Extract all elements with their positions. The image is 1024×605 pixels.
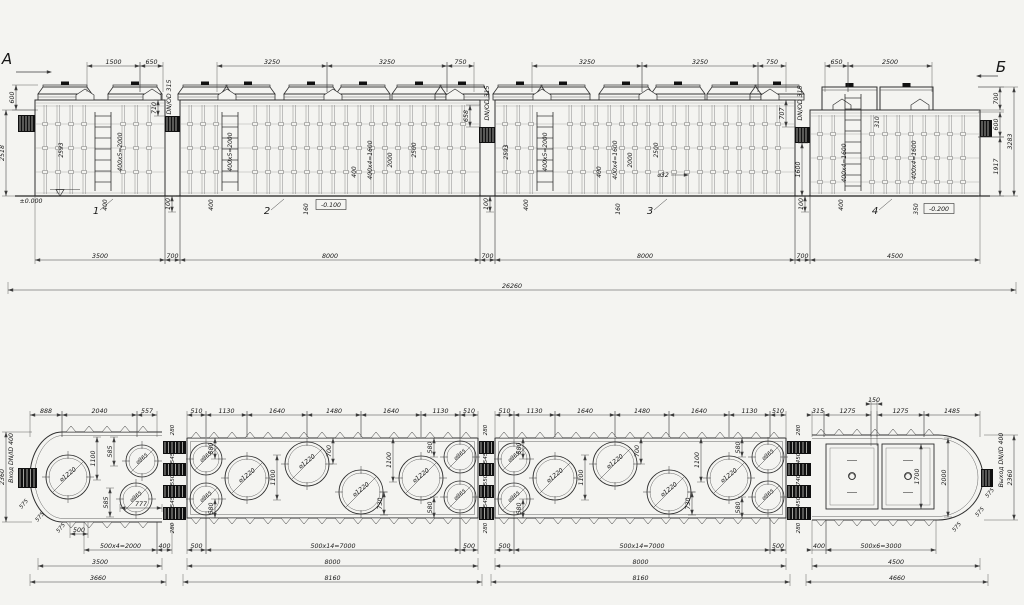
rib-mark (66, 426, 76, 432)
pointed-cover (911, 99, 929, 110)
rib-plate (776, 122, 781, 125)
rib-mark (870, 520, 880, 526)
note-label: 310 (874, 116, 881, 128)
dim-arrow (532, 64, 537, 67)
rib-plate (935, 156, 940, 159)
dim-arrow (983, 580, 988, 583)
rib-plate (581, 170, 586, 173)
note-label: 2593 (58, 142, 65, 157)
rib-plate (776, 170, 781, 173)
dimension-label: 580 (427, 441, 434, 453)
dim-arrow (35, 258, 40, 261)
rib-plate (357, 122, 362, 125)
dim-arrow (391, 477, 394, 482)
diameter-label: ⌀1220 (605, 453, 625, 471)
manhole-dome-rim (226, 85, 270, 87)
dim-arrow (583, 455, 586, 460)
dim-arrow (84, 548, 89, 551)
rib-plate (82, 146, 87, 149)
rib-plate (620, 146, 625, 149)
dim-arrow (469, 64, 474, 67)
dim-arrow (919, 504, 922, 509)
rib-mark (697, 432, 707, 438)
diameter-label: ⌀965 (761, 488, 776, 502)
gap-dim-label: 280 (796, 522, 802, 533)
rib-plate (896, 156, 901, 159)
rib-plate (344, 122, 349, 125)
rib-plate (909, 132, 914, 135)
dim-arrow (302, 413, 307, 416)
dimension-label: 700 (326, 445, 333, 457)
rib-mark (371, 518, 381, 524)
note-label: 2000 (627, 152, 634, 167)
rib-plate (82, 170, 87, 173)
rib-plate (961, 156, 966, 159)
manhole-dome-rim (440, 85, 484, 87)
dim-arrow (477, 580, 482, 583)
dim-arrow (217, 64, 222, 67)
rib-plate (383, 170, 388, 173)
dimension-label: 26260 (502, 283, 522, 290)
rib-mark (852, 429, 862, 435)
dimension-label: 1100 (90, 450, 97, 466)
gap-dim-label: 280 (483, 424, 489, 435)
dimension-label: 510 (498, 408, 510, 415)
rib-mark (679, 518, 689, 524)
dimension-label: 585 (103, 496, 110, 508)
rib-plate (724, 122, 729, 125)
rib-plate (737, 146, 742, 149)
section-number-4: 4 (872, 206, 878, 217)
rib-plate (818, 132, 823, 135)
rib-plate (831, 180, 836, 183)
gap-dim-label: 550 (483, 474, 489, 485)
rib-plate (568, 122, 573, 125)
dimension-label: 580 (427, 501, 434, 513)
rib-plate (56, 122, 61, 125)
rib-plate (435, 122, 440, 125)
dimension-label: 700 (166, 253, 178, 260)
rib-mark (661, 432, 671, 438)
dimension-label: 2360 (0, 469, 6, 485)
dim-arrow (583, 495, 586, 500)
rib-plate (292, 146, 297, 149)
dim-arrow (931, 548, 936, 551)
dim-arrow (946, 512, 949, 517)
rib-plate (503, 170, 508, 173)
manhole-dome-rim (541, 85, 585, 87)
rib-plate (188, 146, 193, 149)
dim-arrow (521, 438, 524, 443)
dim-arrow (800, 143, 803, 148)
dim-arrow (785, 580, 790, 583)
dim-arrow (699, 477, 702, 482)
dim-arrow (514, 413, 519, 416)
rib-plate (948, 180, 953, 183)
dimension-label: 2000 (941, 469, 948, 485)
pointed-cover (143, 89, 161, 100)
rib-mark (281, 432, 291, 438)
rib-plate (750, 122, 755, 125)
dim-arrow (975, 564, 980, 567)
dimension-label: 580 (516, 502, 523, 514)
rib-plate (305, 170, 310, 173)
dim-arrow (206, 413, 211, 416)
rib-mark (589, 518, 599, 524)
vent-knob (903, 83, 911, 87)
rib-mark (816, 429, 826, 435)
module-box-inner (886, 448, 930, 505)
dim-arrow (877, 413, 882, 416)
dimension-label: 8160 (324, 575, 340, 582)
dim-arrow (781, 64, 786, 67)
dimension-label: 400 (813, 543, 825, 550)
dim-arrow (642, 64, 647, 67)
rib-plate (620, 170, 625, 173)
dim-arrow (108, 488, 111, 493)
rib-mark (120, 522, 130, 528)
dimension-label: 600 (9, 91, 16, 103)
rib-plate (870, 180, 875, 183)
note-label: 400 (351, 166, 358, 178)
rib-plate (672, 122, 677, 125)
rib-mark (733, 432, 743, 438)
dim-arrow (152, 548, 157, 551)
rib-plate (883, 156, 888, 159)
note-label: 2500 (653, 142, 660, 157)
rib-plate (737, 122, 742, 125)
dim-arrow (112, 437, 115, 442)
rib-mark (769, 432, 779, 438)
rib-plate (961, 132, 966, 135)
note-label: 350 (913, 203, 920, 215)
rib-mark (227, 518, 237, 524)
rib-plate (568, 170, 573, 173)
rib-plate (134, 146, 139, 149)
dimension-label: 658 (463, 110, 470, 122)
section-number-1: 1 (93, 206, 99, 217)
diameter-label: ⌀1220 (719, 467, 739, 485)
pipe-size-label: DN/OD 315 (797, 85, 804, 120)
connection-pipe (787, 463, 811, 476)
rib-mark (461, 518, 471, 524)
dimension-label: 650 (830, 59, 842, 66)
rib-plate (883, 180, 888, 183)
rib-mark (227, 432, 237, 438)
dimension-label: 750 (766, 59, 778, 66)
dimension-label: 3500 (92, 559, 108, 566)
dim-arrow (157, 506, 162, 509)
vent-knob (359, 82, 367, 86)
pitch-label: 575 (985, 487, 997, 499)
rib-mark (335, 432, 345, 438)
rib-plate (568, 146, 573, 149)
gap-dim-label: 545 (170, 496, 176, 507)
rib-mark (84, 522, 94, 528)
dimension-label: 500 (190, 543, 202, 550)
dim-arrow (740, 497, 743, 502)
dim-arrow (112, 461, 115, 466)
dim-arrow (514, 548, 519, 551)
rib-mark (353, 518, 363, 524)
dim-arrow (161, 580, 166, 583)
rib-plate (896, 180, 901, 183)
rib-plate (961, 180, 966, 183)
pointed-cover (218, 89, 236, 100)
technical-drawing: ⌀1220⌀965⌀965⌀965⌀965⌀1220⌀1220⌀1220⌀122… (0, 0, 1024, 605)
dimension-label: 1700 (914, 468, 921, 484)
rib-plate (711, 122, 716, 125)
dim-arrow (4, 517, 7, 522)
pointed-cover (833, 99, 851, 110)
note-label: 160 (615, 203, 622, 215)
rib-plate (147, 170, 152, 173)
diameter-label: ⌀1220 (545, 467, 565, 485)
rib-mark (906, 429, 916, 435)
dimension-label: 510 (772, 408, 784, 415)
dimension-label: 1100 (386, 452, 393, 468)
gap-dim-label: 450 (796, 496, 802, 507)
rib-plate (922, 180, 927, 183)
rib-mark (443, 518, 453, 524)
dim-arrow (924, 413, 929, 416)
dim-arrow (4, 110, 7, 115)
dimension-label: 600 (993, 118, 1000, 130)
rib-plate (383, 122, 388, 125)
dimension-label: 500x4=2000 (100, 543, 141, 550)
dimension-label: 580 (208, 502, 215, 514)
rib-plate (43, 122, 48, 125)
rib-plate (698, 146, 703, 149)
dimension-label: 510 (463, 408, 475, 415)
line (879, 199, 892, 210)
dim-arrow (4, 191, 7, 196)
manhole-dome-rim (113, 85, 157, 87)
vent-knob (415, 82, 423, 86)
dim-arrow (140, 64, 145, 67)
diameter-label: ⌀965 (135, 452, 150, 466)
rib-plate (201, 122, 206, 125)
manhole-dome-rim (183, 85, 227, 87)
manhole-dome-rim (656, 85, 700, 87)
rib-plate (422, 122, 427, 125)
tank4-inner-wall (812, 439, 978, 517)
rib-plate (594, 122, 599, 125)
dim-arrow (247, 413, 252, 416)
rib-plate (279, 146, 284, 149)
rib-plate (698, 170, 703, 173)
dimension-label: 1130 (432, 408, 448, 415)
rib-plate (685, 122, 690, 125)
vent-knob (131, 82, 139, 86)
diameter-label: ⌀965 (199, 490, 214, 504)
rib-plate (409, 170, 414, 173)
dim-arrow (421, 413, 426, 416)
dim-arrow (432, 497, 435, 502)
dim-arrow (1012, 515, 1015, 520)
dim-arrow (781, 564, 786, 567)
outlet-label: Выход DN/ID 400 (998, 433, 1005, 488)
dimension-label: 100 (798, 198, 805, 210)
dim-arrow (468, 105, 471, 110)
diameter-label: ⌀1220 (411, 467, 431, 485)
rib-plate (435, 170, 440, 173)
dimension-label: 500 (463, 543, 475, 550)
rib-plate (448, 122, 453, 125)
rib-plate (201, 170, 206, 173)
gap-dim-label: 450 (796, 452, 802, 463)
dimension-label: 650 (145, 59, 157, 66)
dimension-label: 2500 (882, 59, 898, 66)
dimension-label: 777 (135, 501, 147, 508)
rib-plate (896, 132, 901, 135)
rib-plate (69, 122, 74, 125)
rib-plate (422, 170, 427, 173)
rib-mark (816, 520, 826, 526)
rib-plate (134, 170, 139, 173)
dim-arrow (361, 413, 366, 416)
rib-plate (266, 170, 271, 173)
dim-arrow (206, 548, 211, 551)
dim-arrow (753, 64, 758, 67)
diameter-label: ⌀1220 (351, 481, 371, 499)
dimension-label: 1917 (993, 158, 1000, 174)
level-zero-label: ±0.000 (20, 198, 43, 205)
dimension-label: 580 (208, 442, 215, 454)
rib-mark (299, 432, 309, 438)
vent-knob (773, 82, 781, 86)
note-label: 2000 (387, 152, 394, 167)
vent-knob (201, 82, 209, 86)
pointed-cover (446, 89, 464, 100)
dimension-label: 1100 (578, 469, 585, 485)
rib-plate (266, 146, 271, 149)
rib-mark (589, 432, 599, 438)
dimension-label: 2360 (1007, 469, 1014, 485)
rib-plate (69, 170, 74, 173)
rib-mark (120, 426, 130, 432)
rib-mark (924, 520, 934, 526)
rib-plate (607, 146, 612, 149)
rib-plate (646, 122, 651, 125)
rib-mark (443, 432, 453, 438)
vent-knob (61, 82, 69, 86)
rib-plate (43, 146, 48, 149)
rib-mark (389, 432, 399, 438)
dim-arrow (275, 495, 278, 500)
dimension-label: 700 (634, 445, 641, 457)
rib-mark (407, 518, 417, 524)
pitch-label: 575 (56, 522, 68, 534)
diameter-label: ⌀1220 (58, 466, 78, 484)
dim-arrow (790, 258, 795, 261)
rib-plate (685, 170, 690, 173)
dim-arrow (1012, 87, 1015, 92)
dim-arrow (183, 580, 188, 583)
manhole-dome-cap (336, 87, 390, 94)
gap-dim-label: 545 (483, 496, 489, 507)
rib-plate (607, 122, 612, 125)
rib-mark (661, 518, 671, 524)
dim-arrow (724, 413, 729, 416)
dimension-label: 4500 (888, 559, 904, 566)
connection-pipe (787, 441, 811, 454)
pointed-cover (639, 89, 657, 100)
manhole-dome-rim (43, 85, 87, 87)
vent-knob (846, 83, 854, 87)
dim-arrow (1012, 435, 1015, 440)
dim-arrow (669, 413, 674, 416)
manhole-dome-rim (289, 85, 333, 87)
rib-plate (292, 170, 297, 173)
rib-plate (422, 146, 427, 149)
dim-arrow (825, 64, 830, 67)
rib-plate (883, 132, 888, 135)
dim-arrow (8, 288, 13, 291)
dim-arrow (331, 438, 334, 443)
level-minus-100-label: -0.100 (321, 202, 341, 209)
dim-arrow (998, 137, 1001, 142)
dimension-label: 8000 (632, 559, 648, 566)
rib-plate (214, 146, 219, 149)
dim-arrow (57, 413, 62, 416)
gap-dim-label: 280 (796, 424, 802, 435)
module-box (826, 444, 878, 509)
dim-arrow (806, 580, 811, 583)
diameter-label: ⌀1220 (659, 481, 679, 499)
rib-mark (715, 432, 725, 438)
note-label: 400 (838, 199, 845, 211)
rib-plate (633, 122, 638, 125)
pointed-cover (533, 89, 551, 100)
drawing-sheet: ⌀1220⌀965⌀965⌀965⌀965⌀1220⌀1220⌀1220⌀122… (0, 0, 1024, 605)
rib-plate (357, 146, 362, 149)
dimension-label: 8160 (632, 575, 648, 582)
tank4-outline (812, 435, 983, 520)
rib-plate (214, 122, 219, 125)
gap-dim-label: 740 (796, 474, 802, 485)
level-minus-200-label: -0.200 (929, 206, 949, 213)
dim-arrow (848, 64, 853, 67)
vent-knob (516, 82, 524, 86)
dimension-label: 750 (454, 59, 466, 66)
dim-arrow (998, 112, 1001, 117)
rib-plate (69, 146, 74, 149)
dimension-label: 8000 (324, 559, 340, 566)
dim-arrow (699, 438, 702, 443)
dimension-label: 700 (993, 92, 1000, 104)
rib-plate (909, 180, 914, 183)
note-label: 400x5=2000 (542, 132, 549, 171)
dim-arrow (120, 506, 125, 509)
rib-mark (389, 518, 399, 524)
dim-arrow (135, 64, 140, 67)
dimension-label: 557 (141, 408, 153, 415)
rib-plate (818, 156, 823, 159)
manhole-dome-rim (498, 85, 542, 87)
rib-plate (305, 146, 310, 149)
dimension-label: 3250 (692, 59, 708, 66)
dimension-label: 3283 (1007, 133, 1014, 149)
section-number-3: 3 (647, 206, 653, 217)
rib-plate (737, 170, 742, 173)
dimension-label: 710 (151, 102, 158, 114)
rib-mark (102, 522, 112, 528)
rib-plate (396, 146, 401, 149)
rib-mark (353, 432, 363, 438)
rib-plate (646, 146, 651, 149)
rib-mark (281, 518, 291, 524)
